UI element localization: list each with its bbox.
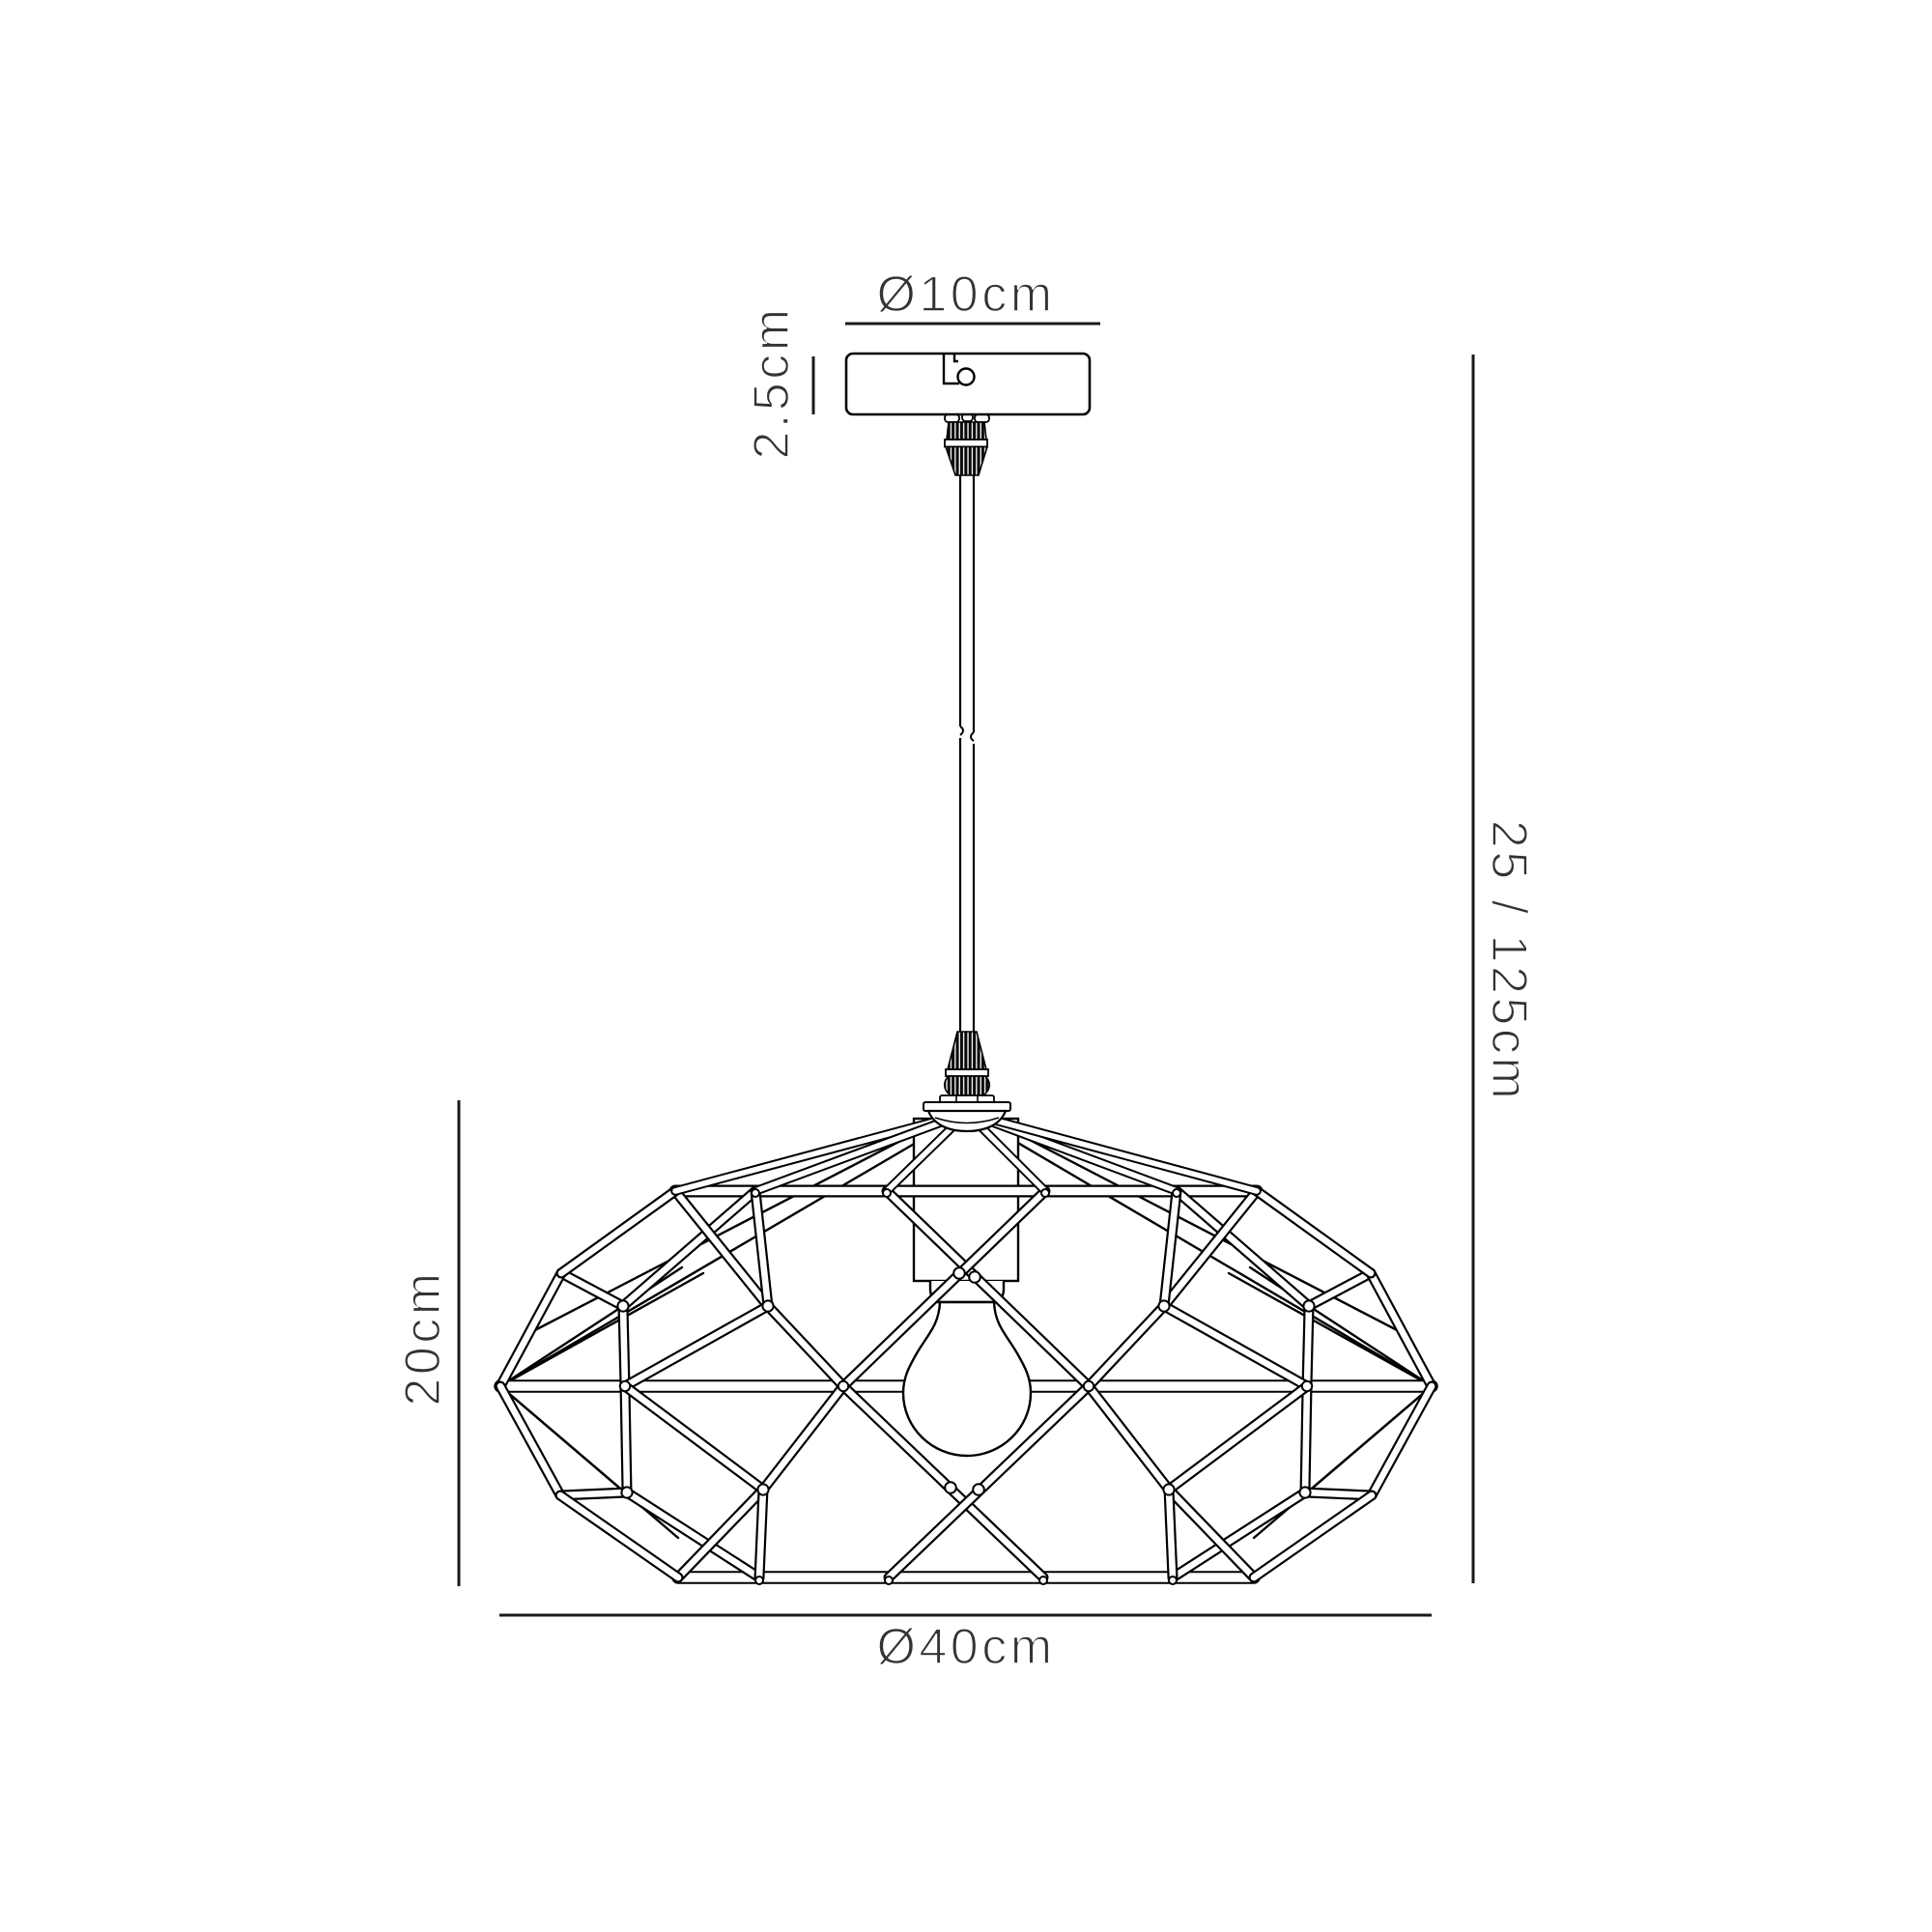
svg-text:20cm: 20cm	[395, 1269, 451, 1406]
svg-text:25 / 125cm: 25 / 125cm	[1481, 820, 1537, 1102]
svg-text:2.5cm: 2.5cm	[744, 305, 800, 459]
svg-text:Ø40cm: Ø40cm	[876, 1619, 1055, 1675]
svg-text:Ø10cm: Ø10cm	[876, 267, 1055, 323]
